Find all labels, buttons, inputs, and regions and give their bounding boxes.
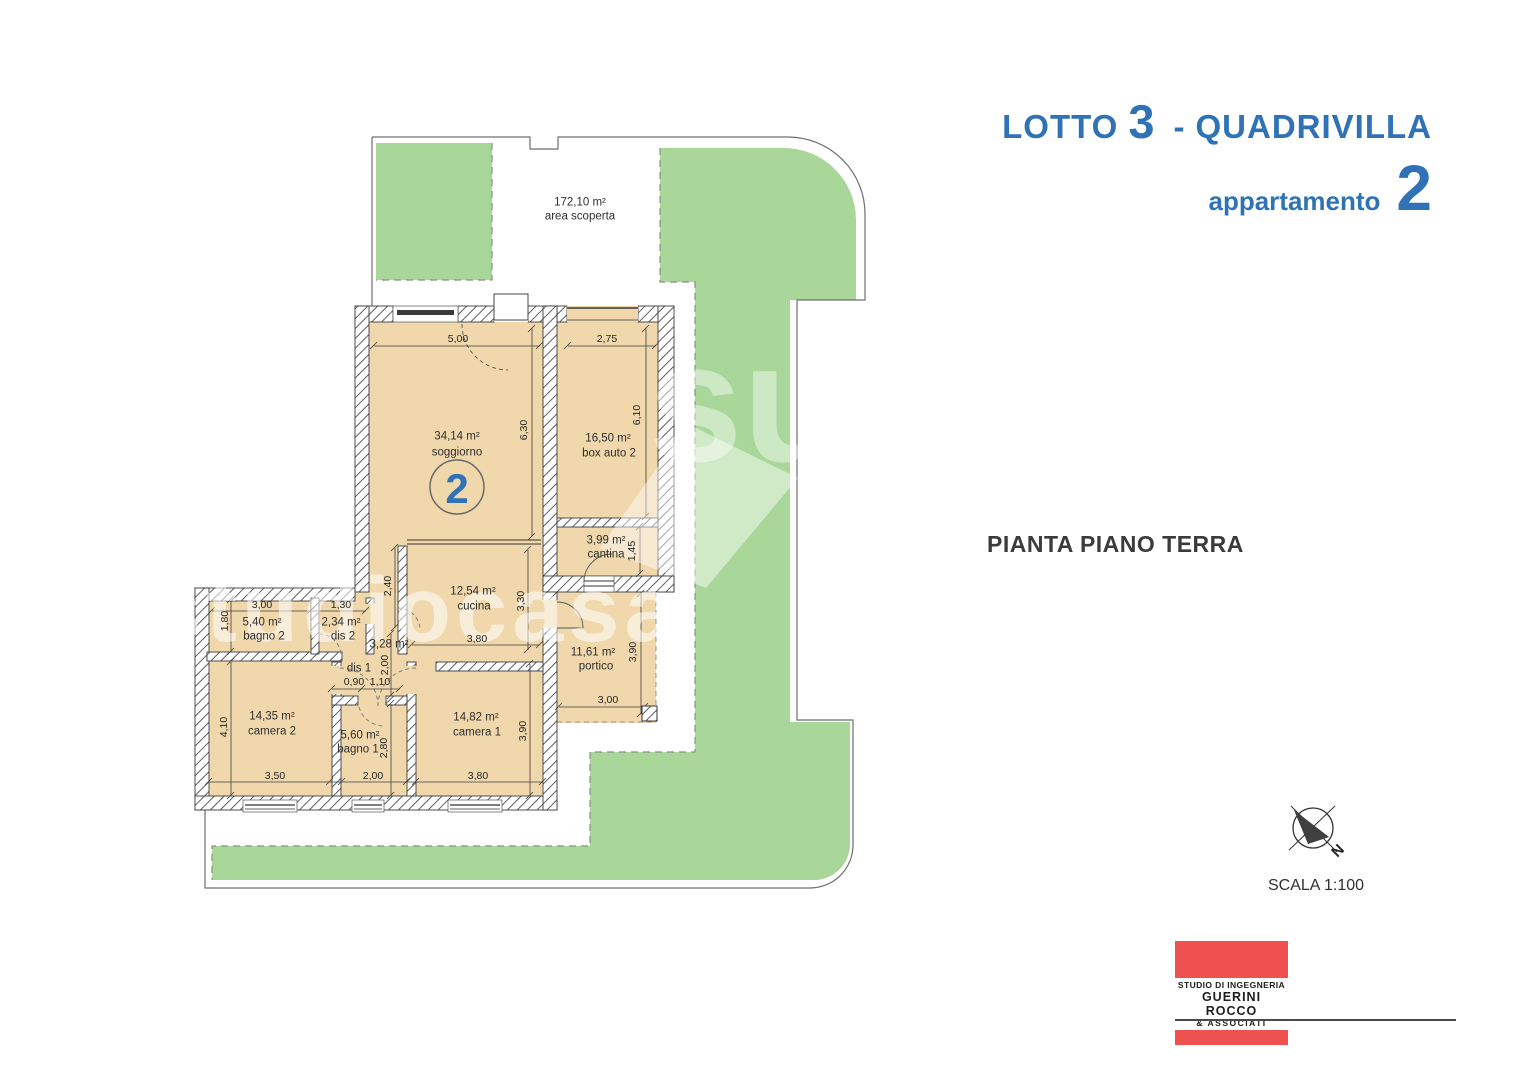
title-separator: -: [1174, 108, 1186, 146]
dim-dis1-h: 2,00: [380, 655, 391, 675]
dim-corridor-h: 2,40: [383, 576, 394, 596]
room-dis2-area: 2,34 m²: [322, 617, 361, 629]
room-cucina-area: 12,54 m²: [450, 586, 495, 598]
dim-camera2-w: 3,50: [265, 771, 285, 782]
dim-camera2-h: 4,10: [219, 717, 230, 737]
project-name: QUADRIVILLA: [1196, 108, 1433, 146]
logo-red-bar-top: [1175, 941, 1288, 978]
studio-name-line1: STUDIO DI INGEGNERIA: [1175, 980, 1288, 990]
room-camera1-label: camera 1: [453, 727, 501, 739]
dim-bagno1-w: 2,00: [363, 771, 383, 782]
drawing-sheet: su studiocasa 172,10 m² area scoperta 34…: [0, 0, 1527, 1080]
logo-red-bar-bottom: [1175, 1030, 1288, 1045]
room-dis1-area: 3,28 m²: [370, 639, 409, 651]
apartment-title: appartamento 2: [1002, 151, 1432, 225]
room-camera2-area: 14,35 m²: [249, 711, 294, 723]
dim-soggiorno-h: 6,30: [519, 420, 530, 440]
room-soggiorno-area: 34,14 m²: [434, 431, 479, 443]
room-cucina-label: cucina: [457, 601, 490, 613]
dim-camera1-w: 3,80: [468, 771, 488, 782]
dim-dis2-w: 1,30: [331, 600, 351, 611]
room-dis2-label: dis 2: [331, 631, 355, 643]
room-camera2-label: camera 2: [248, 726, 296, 738]
room-box-auto-label: box auto 2: [582, 448, 636, 460]
dim-portico-w: 3,00: [598, 695, 618, 706]
apartment-label: appartamento: [1208, 186, 1380, 217]
room-bagno1-label: bagno 1: [337, 744, 379, 756]
scale-label: SCALA 1:100: [1268, 877, 1364, 895]
dim-soggiorno-w: 5,00: [448, 334, 468, 345]
dim-bagno2-w: 3,00: [252, 600, 272, 611]
outdoor-area-label: area scoperta: [545, 211, 615, 223]
dim-portico-h: 3,90: [628, 642, 639, 662]
dim-box-h: 6,10: [632, 405, 643, 425]
unit-number: 2: [445, 465, 468, 513]
room-dis1-label: dis 1: [347, 663, 371, 675]
room-cantina-area: 3,99 m²: [587, 535, 626, 547]
dim-camera1-h: 3,90: [518, 721, 529, 741]
dim-dis1-w1: 0,90: [344, 677, 364, 688]
room-bagno1-area: 5,60 m²: [341, 730, 380, 742]
outdoor-area-value: 172,10 m²: [554, 197, 606, 209]
dim-bagno1-h: 2,80: [379, 738, 390, 758]
dim-dis1-w2: 1,10: [370, 677, 390, 688]
plan-title: PIANTA PIANO TERRA: [987, 531, 1244, 558]
dim-bagno2-h: 1,80: [220, 611, 231, 631]
room-box-auto-area: 16,50 m²: [585, 433, 630, 445]
dim-box-w: 2,75: [597, 334, 617, 345]
studio-name-line2: GUERINI ROCCO: [1175, 990, 1288, 1018]
room-soggiorno-label: soggiorno: [432, 447, 483, 459]
room-portico-area: 11,61 m²: [571, 647, 616, 659]
dim-cucina-h: 3,30: [516, 591, 527, 611]
room-camera1-area: 14,82 m²: [453, 712, 498, 724]
lot-title: LOTTO 3 - QUADRIVILLA: [1002, 94, 1432, 149]
lotto-label: LOTTO: [1002, 108, 1118, 146]
room-bagno2-area: 5,40 m²: [243, 617, 282, 629]
apartment-number: 2: [1396, 151, 1432, 225]
title-block: LOTTO 3 - QUADRIVILLA appartamento 2: [1002, 94, 1432, 225]
dim-cucina-w: 3,80: [467, 634, 487, 645]
room-bagno2-label: bagno 2: [243, 631, 285, 643]
studio-logo: STUDIO DI INGEGNERIA GUERINI ROCCO & ASS…: [1175, 941, 1288, 1045]
dim-cantina-h: 1,45: [627, 541, 638, 561]
room-portico-label: portico: [579, 661, 614, 673]
room-cantina-label: cantina: [587, 549, 624, 561]
lotto-number: 3: [1128, 94, 1155, 149]
footer-divider-line: [1175, 1019, 1456, 1021]
